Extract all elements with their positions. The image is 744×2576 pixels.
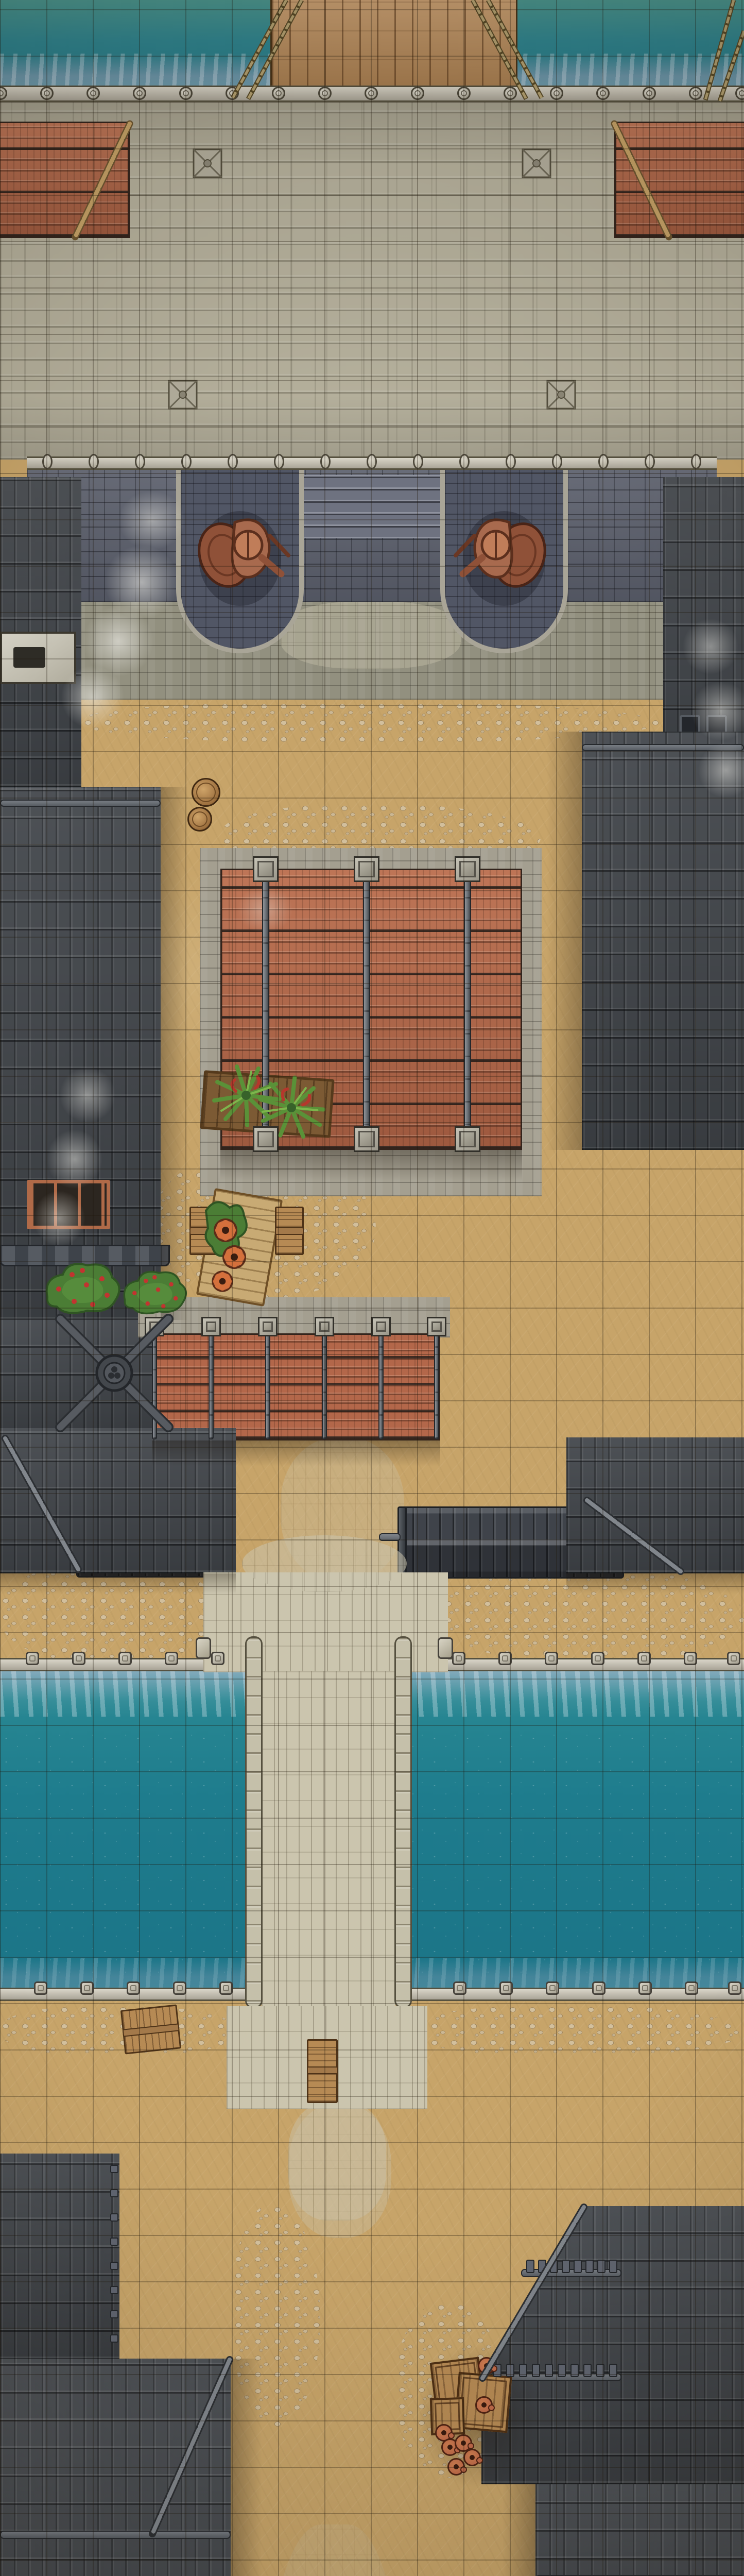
vignette (0, 0, 744, 2576)
battle-map: DnDUNGEON MAPS BY CYCLOPEAN DNDMAPS.NET (0, 0, 744, 2576)
